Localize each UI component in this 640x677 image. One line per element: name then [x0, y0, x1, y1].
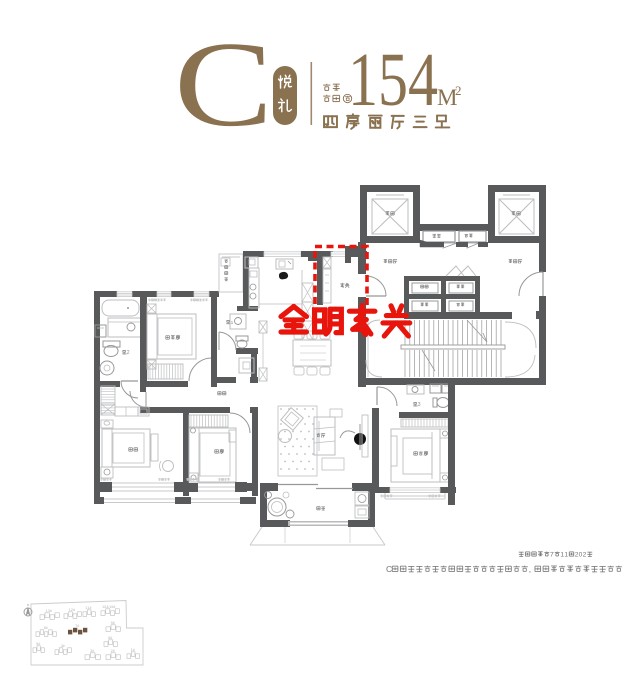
svg-text:#: # — [73, 608, 75, 612]
svg-text:#: # — [50, 609, 52, 613]
svg-text:C: C — [386, 564, 392, 574]
svg-text:2: 2 — [583, 552, 587, 559]
svg-text:#: # — [113, 649, 115, 653]
svg-text:154: 154 — [348, 37, 438, 121]
svg-text:1: 1 — [564, 552, 568, 559]
svg-text:C: C — [174, 17, 273, 152]
svg-text:#: # — [110, 636, 112, 640]
svg-text:#: # — [92, 649, 94, 653]
svg-text:#: # — [63, 644, 65, 648]
svg-text:#: # — [90, 606, 92, 610]
svg-text:#: # — [133, 648, 135, 652]
svg-text:#: # — [113, 621, 115, 625]
svg-text:#: # — [113, 605, 115, 609]
svg-text:#: # — [77, 624, 79, 628]
svg-text:7: 7 — [550, 552, 554, 559]
svg-text:2: 2 — [127, 350, 130, 356]
svg-text:2: 2 — [455, 83, 462, 98]
svg-text:#: # — [38, 642, 40, 646]
svg-text:3: 3 — [418, 402, 421, 408]
svg-text:#: # — [46, 626, 48, 630]
svg-text:,: , — [529, 564, 531, 574]
svg-text:1: 1 — [231, 320, 234, 326]
